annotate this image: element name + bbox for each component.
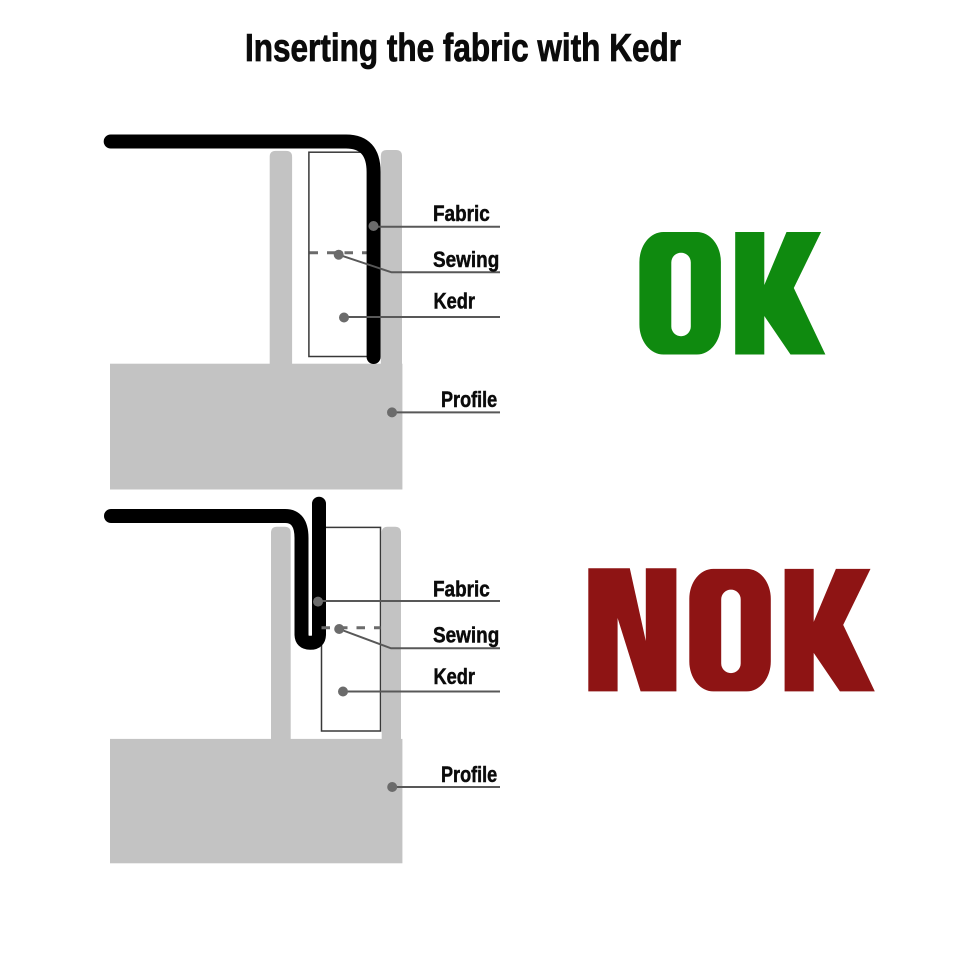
svg-text:Inserting the fabric with Kedr: Inserting the fabric with Kedr [245, 27, 681, 70]
svg-text:Kedr: Kedr [434, 289, 476, 314]
svg-text:Profile: Profile [441, 387, 497, 412]
svg-text:Profile: Profile [441, 762, 497, 787]
svg-text:Fabric: Fabric [433, 576, 490, 601]
svg-text:Fabric: Fabric [433, 201, 490, 226]
svg-text:Kedr: Kedr [434, 664, 476, 689]
svg-text:Sewing: Sewing [433, 623, 499, 648]
svg-text:Sewing: Sewing [433, 247, 499, 272]
